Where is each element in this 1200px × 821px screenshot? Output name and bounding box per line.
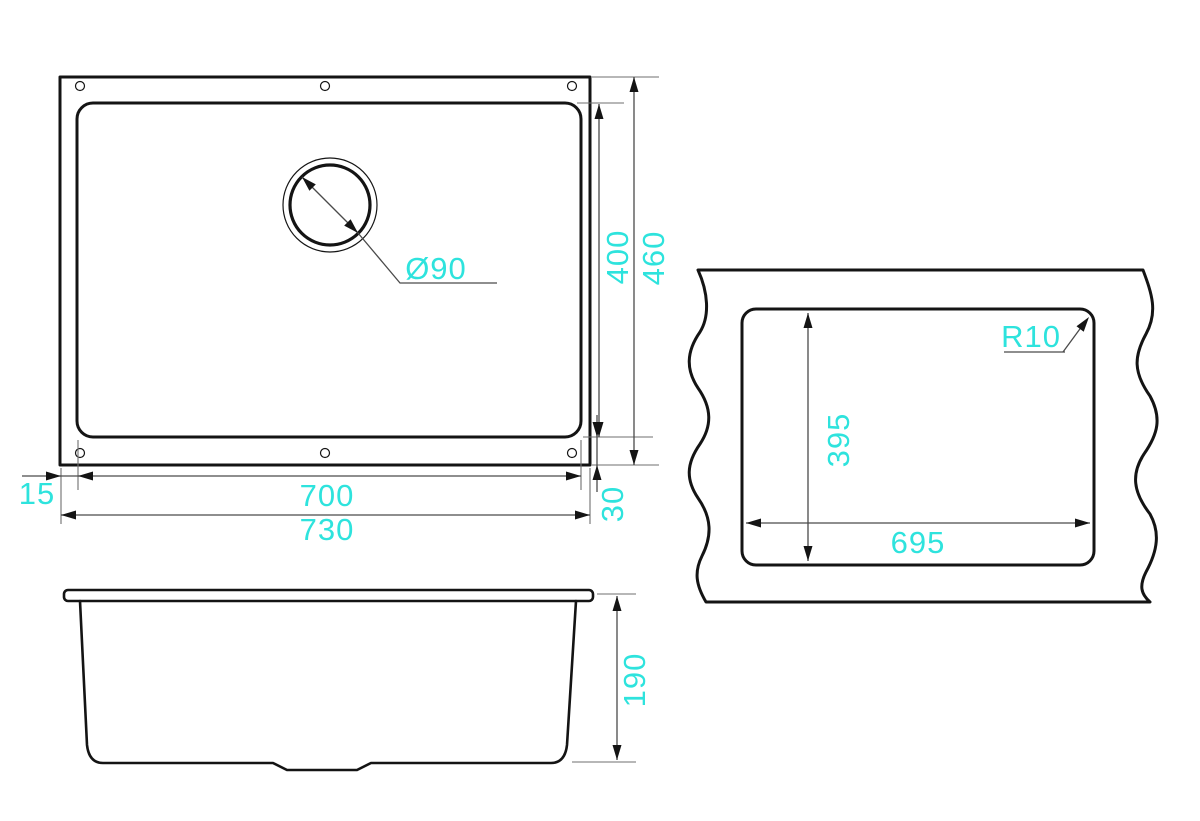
- dim-label-overall-width: 730: [300, 512, 355, 547]
- dim-label-overall-depth: 460: [636, 231, 671, 286]
- dim-label-cutout-width: 695: [891, 525, 946, 560]
- dim-label-bowl-height: 190: [617, 653, 652, 708]
- dim-label-cutout-depth: 395: [821, 413, 856, 468]
- dim-label-corner-radius: R10: [1001, 319, 1061, 354]
- dim-label-drain-diameter: Ø90: [405, 251, 467, 286]
- dim-label-bowl-depth: 400: [600, 230, 635, 285]
- technical-drawing-canvas: Ø90 400 460 30: [0, 0, 1200, 821]
- dim-label-flange-left: 15: [19, 476, 55, 511]
- dim-label-bowl-width: 700: [300, 478, 355, 513]
- drawing-background: [0, 0, 1200, 821]
- dim-label-flange-bottom: 30: [595, 486, 630, 522]
